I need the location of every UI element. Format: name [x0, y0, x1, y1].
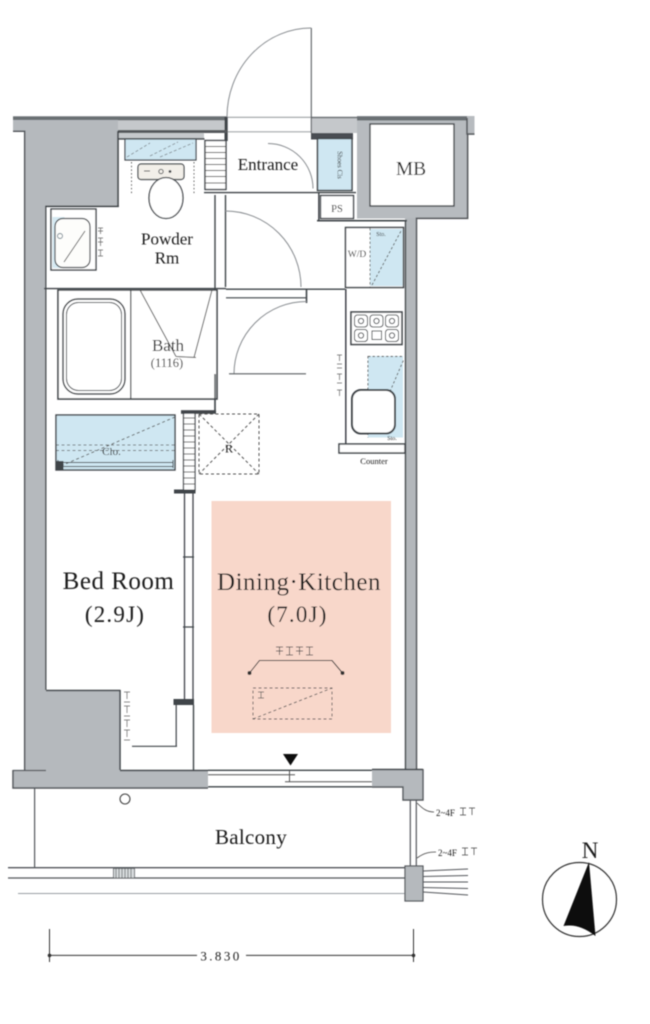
svg-text:Entrance: Entrance: [238, 155, 298, 174]
svg-text:PS: PS: [331, 204, 343, 215]
svg-text:2~4F: 2~4F: [438, 848, 457, 858]
svg-text:R: R: [225, 442, 233, 456]
svg-text:(2.9J): (2.9J): [85, 602, 145, 627]
svg-text:(1116): (1116): [151, 356, 183, 370]
svg-text:3.830: 3.830: [200, 949, 241, 964]
svg-text:Bed Room: Bed Room: [63, 568, 175, 595]
svg-text:MB: MB: [396, 159, 426, 180]
svg-text:Clo.: Clo.: [102, 446, 121, 458]
svg-text:N: N: [582, 838, 599, 863]
svg-text:W/D: W/D: [348, 250, 367, 260]
svg-text:Sto.: Sto.: [376, 232, 386, 238]
svg-text:Shoes Cls: Shoes Cls: [336, 151, 344, 179]
svg-text:Powder: Powder: [141, 230, 193, 249]
svg-text:2~4F: 2~4F: [436, 808, 455, 818]
svg-text:Rm: Rm: [155, 249, 180, 268]
svg-text:Dining·Kitchen: Dining·Kitchen: [217, 569, 381, 596]
svg-text:Balcony: Balcony: [215, 825, 287, 849]
svg-text:Sto.: Sto.: [387, 436, 397, 442]
svg-text:Bath: Bath: [152, 336, 185, 355]
svg-text:Counter: Counter: [360, 456, 388, 466]
svg-text:(7.0J): (7.0J): [267, 602, 327, 627]
